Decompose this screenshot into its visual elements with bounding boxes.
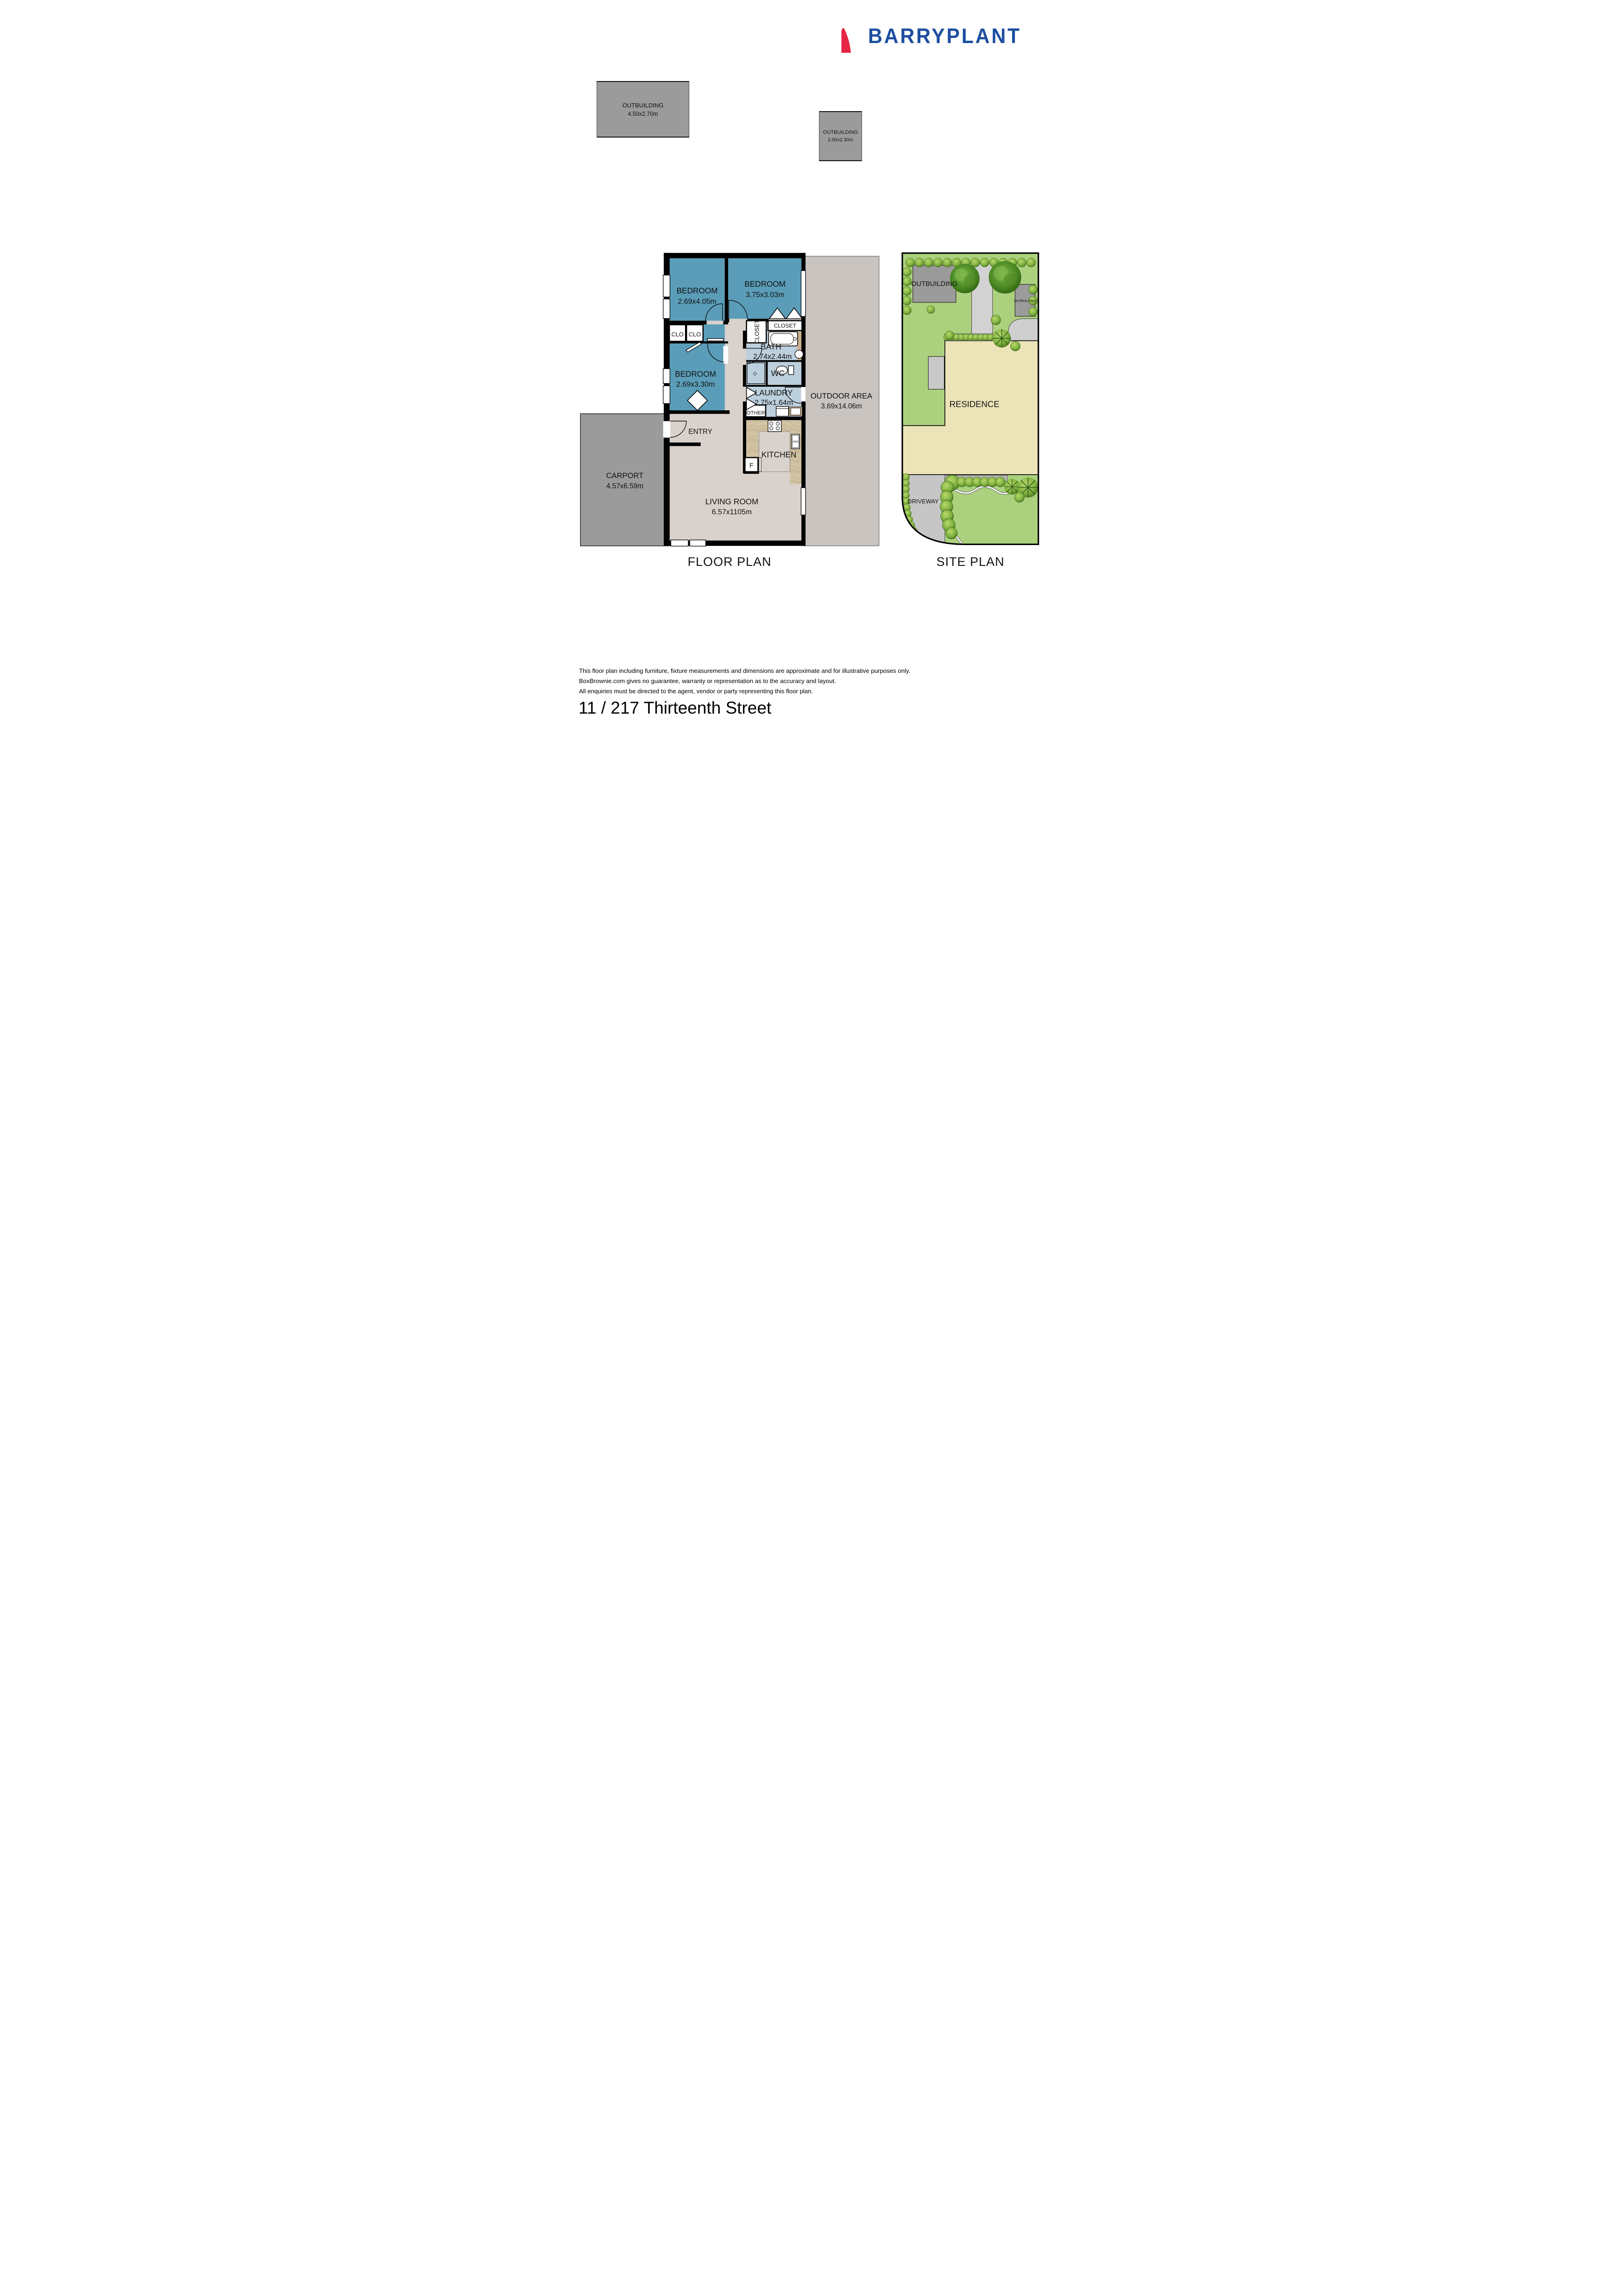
outdoor-label: OUTDOOR AREA xyxy=(811,392,873,401)
closet-vertical-label: CLOSET xyxy=(753,320,760,344)
bedroom3-label: BEDROOM xyxy=(675,370,716,379)
floor-plan: OUTDOOR AREA 3.69x14.06m CARPORT 4.57x6.… xyxy=(579,251,881,547)
site-plan: OUTBUILDING OUTBUILDING RESIDENCE DRIVEW… xyxy=(901,252,1040,546)
outbuilding-small-dims: 2.00x2.30m xyxy=(828,137,853,143)
bedroom1-dims: 2.69x4.05m xyxy=(678,298,716,306)
clo-left-label: CLO xyxy=(672,331,684,338)
bedroom3-dims: 2.69x3.30m xyxy=(676,381,715,389)
logo-sail-icon xyxy=(840,26,852,53)
site-pad-right xyxy=(1008,319,1039,341)
stove-icon xyxy=(768,420,781,432)
fridge-label: F xyxy=(749,462,754,469)
bath-sink-icon xyxy=(795,350,803,358)
kitchen-bench-left xyxy=(746,420,759,457)
kitchen-sink-icon xyxy=(791,434,799,449)
living-label: LIVING ROOM xyxy=(705,497,759,506)
disclaimer-line-2: BoxBrownie.com gives no guarantee, warra… xyxy=(579,676,996,686)
closet-horizontal-label: CLOSET xyxy=(774,323,796,329)
bedroom1-label: BEDROOM xyxy=(677,286,718,295)
shower-nook xyxy=(746,362,766,385)
entry-label: ENTRY xyxy=(688,428,712,436)
carport-label: CARPORT xyxy=(606,471,643,480)
room-outdoor-area: OUTDOOR AREA 3.69x14.06m xyxy=(804,256,879,546)
laundry-label: LAUNDRY xyxy=(755,388,793,397)
other-label: OTHER xyxy=(747,410,765,416)
hedge-left xyxy=(902,267,911,314)
page: BARRYPLANT OUTBUILDING 4.50x2.70m OUTBUI… xyxy=(553,0,1071,734)
living-dims: 6.57x1105m xyxy=(712,508,752,516)
carport-dims: 4.57x6.59m xyxy=(606,482,643,490)
washer-icon xyxy=(776,407,789,416)
wc-label: WC xyxy=(771,369,785,378)
address-title: 11 / 217 Thirteenth Street xyxy=(579,698,771,718)
site-outbuilding-small-label: OUTBUILDING xyxy=(1014,300,1036,303)
outbuilding-box-small: OUTBUILDING 2.00x2.30m xyxy=(819,111,862,161)
logo-wordmark: BARRYPLANT xyxy=(868,24,1021,48)
outbuilding-large-label: OUTBUILDING xyxy=(623,102,664,109)
site-residence-label: RESIDENCE xyxy=(950,399,1000,409)
bedroom2-label: BEDROOM xyxy=(744,279,786,289)
bath-label: BATH xyxy=(761,342,781,351)
bath-dims: 2.74x2.44m xyxy=(753,353,792,361)
outbuilding-small-label: OUTBUILDING xyxy=(823,130,858,135)
outbuilding-box-large: OUTBUILDING 4.50x2.70m xyxy=(597,81,689,138)
laundry-dims: 2.75x1.64m xyxy=(755,399,793,407)
floor-plan-caption: FLOOR PLAN xyxy=(579,555,881,569)
site-driveway-label: DRIVEWAY xyxy=(908,498,939,505)
clo-right-label: CLO xyxy=(689,331,701,338)
outbuilding-large-dims: 4.50x2.70m xyxy=(628,111,658,117)
dishwasher-icon xyxy=(759,458,761,472)
outdoor-dims: 3.69x14.06m xyxy=(821,402,862,410)
site-outbuilding-large-label: OUTBUILDING xyxy=(911,280,957,288)
site-patio xyxy=(928,357,944,389)
room-carport: CARPORT 4.57x6.59m xyxy=(580,414,669,546)
disclaimer-line-3: All enquiries must be directed to the ag… xyxy=(579,686,996,696)
site-plan-caption: SITE PLAN xyxy=(901,555,1040,569)
disclaimer: This floor plan including furniture, fix… xyxy=(579,666,996,696)
laundry-tub-icon xyxy=(789,407,802,416)
disclaimer-line-1: This floor plan including furniture, fix… xyxy=(579,666,996,676)
kitchen-label: KITCHEN xyxy=(762,450,797,459)
bedroom2-dims: 3.75x3.03m xyxy=(746,291,784,299)
